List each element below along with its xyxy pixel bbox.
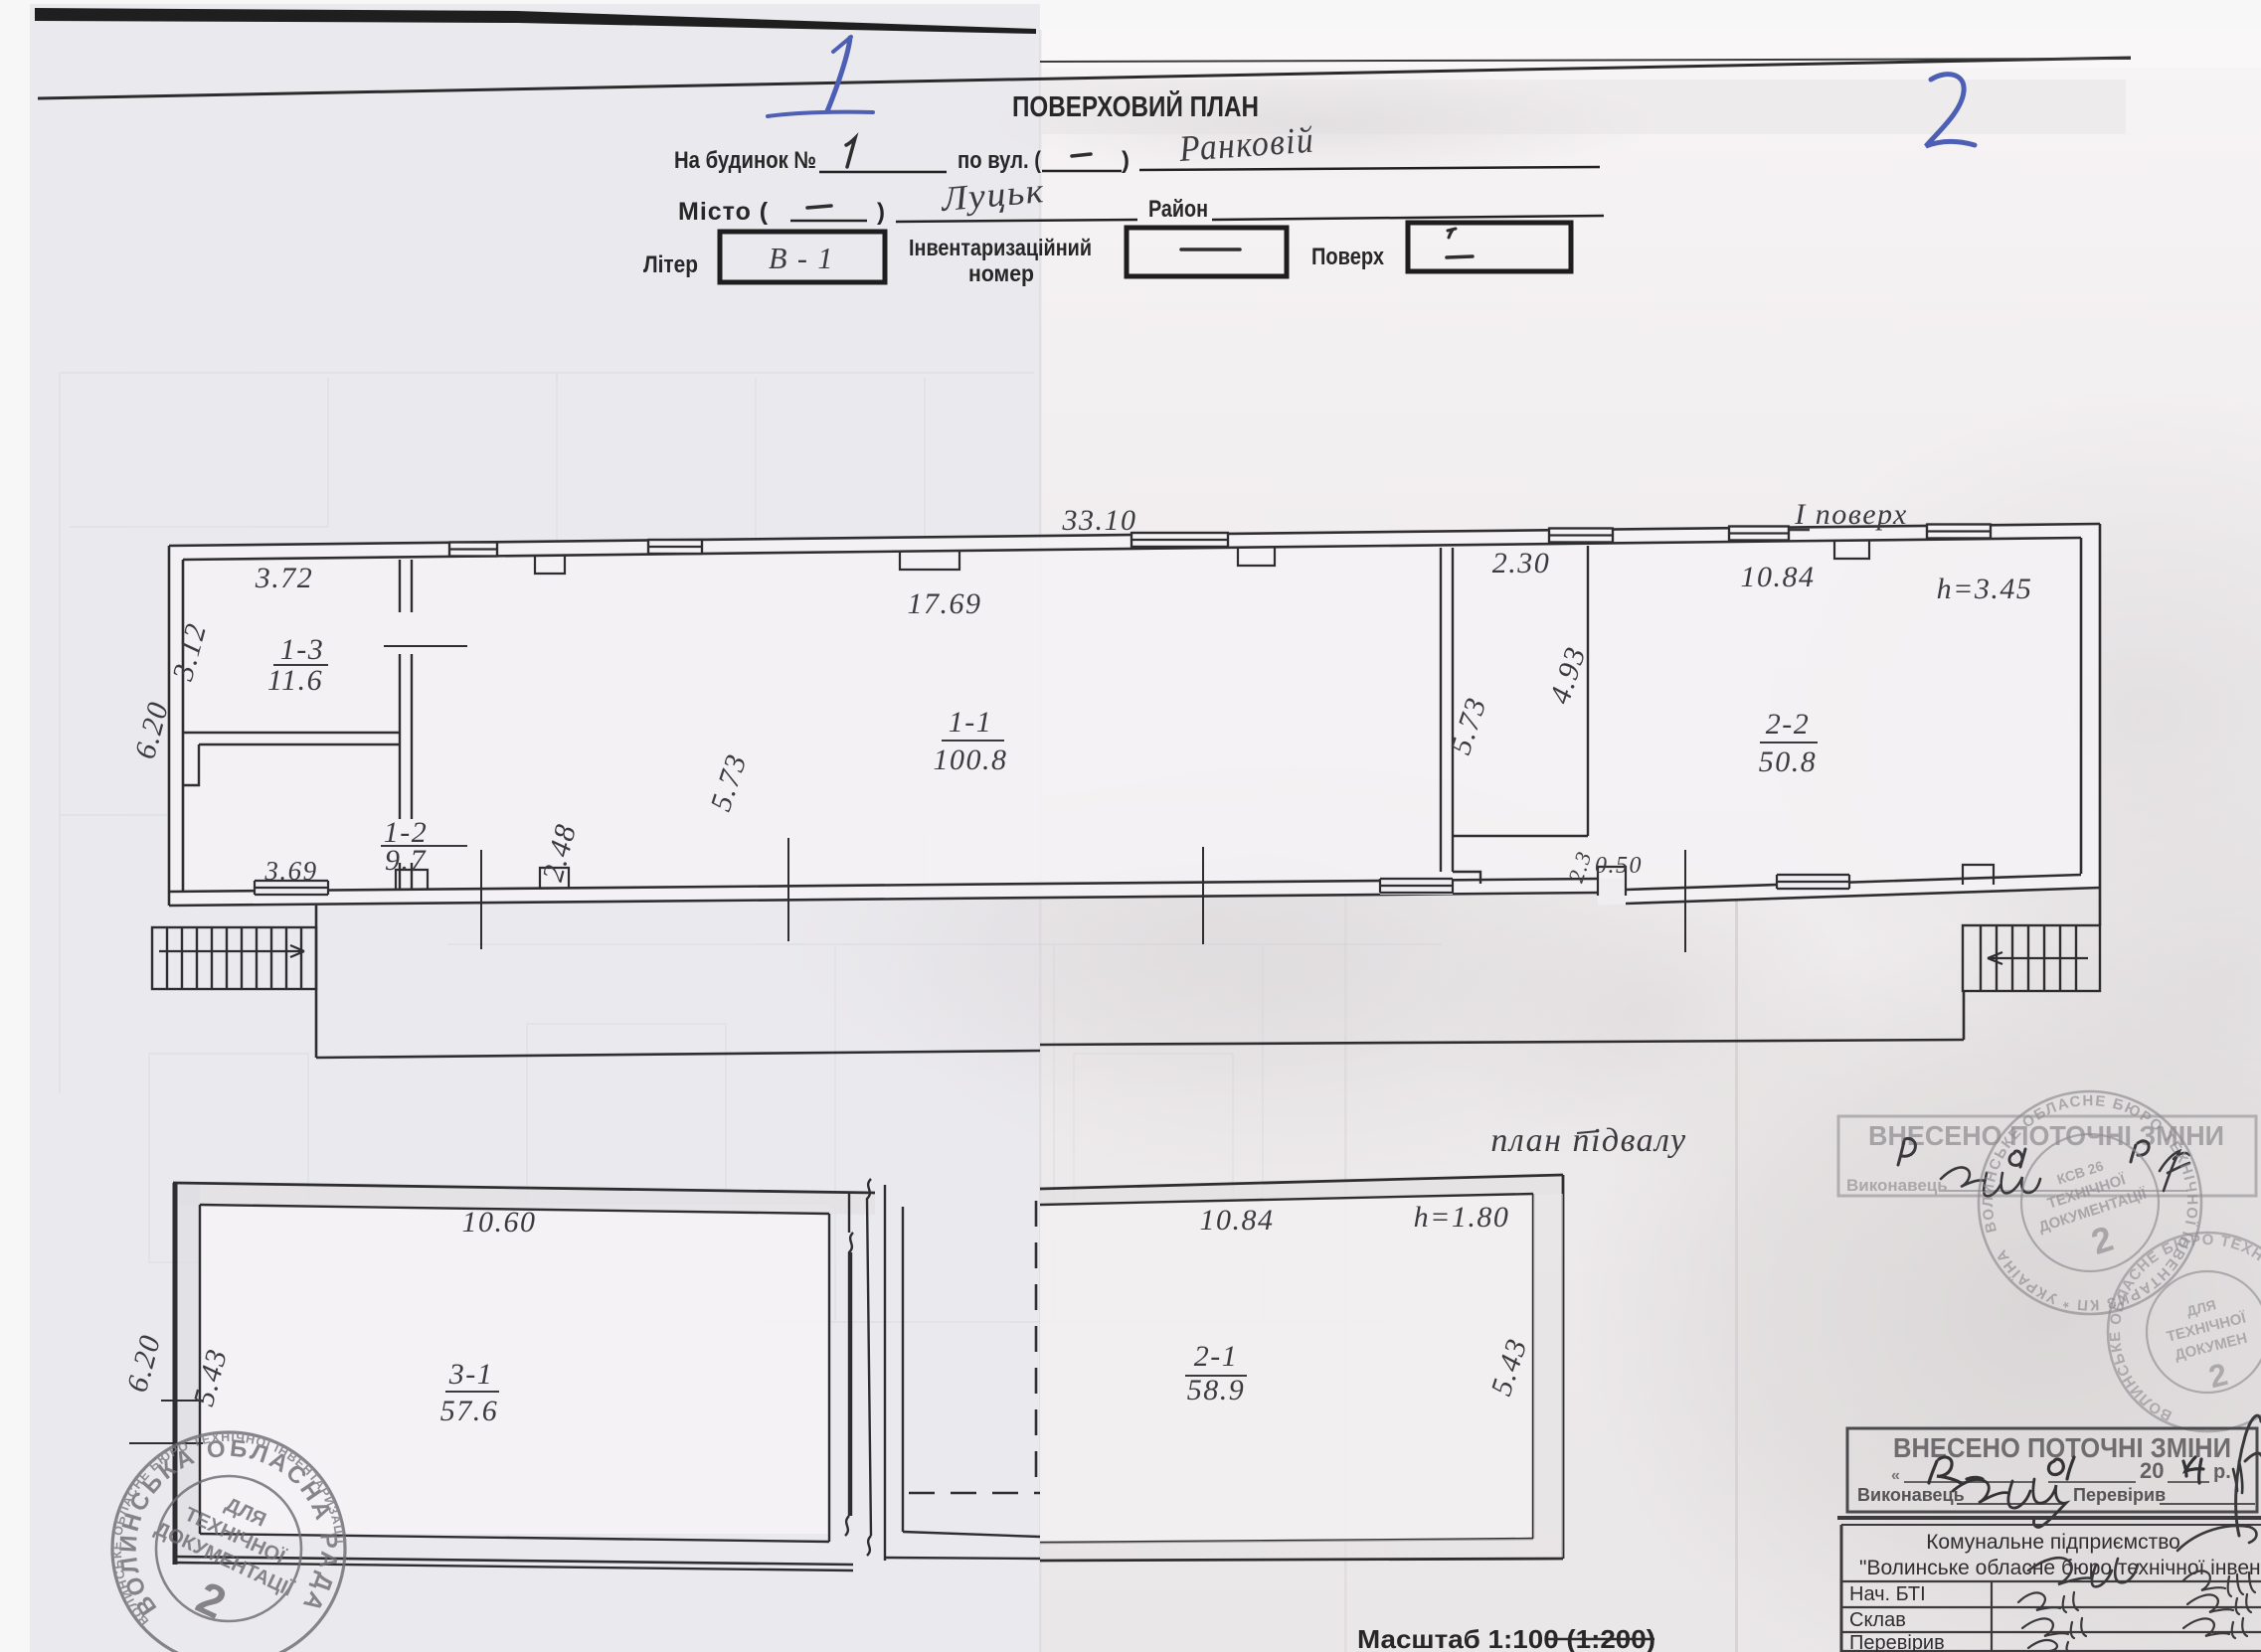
- svg-text:В - 1: В - 1: [769, 241, 834, 275]
- svg-text:58.9: 58.9: [1187, 1374, 1246, 1406]
- svg-text:3.72: 3.72: [255, 562, 314, 594]
- svg-text:"Волинське обласне бюро техніч: "Волинське обласне бюро технічної інвент…: [1859, 1557, 2261, 1579]
- svg-text:Перевірив: Перевірив: [1849, 1632, 1945, 1652]
- svg-text:Інвентаризаційний: Інвентаризаційний: [909, 235, 1092, 260]
- svg-text:Поверх: Поверх: [1311, 244, 1385, 270]
- svg-text:33.10: 33.10: [1062, 504, 1137, 537]
- svg-text:17.69: 17.69: [908, 587, 982, 620]
- svg-text:І поверх: І поверх: [1794, 498, 1908, 531]
- svg-text:Виконавець: Виконавець: [1857, 1485, 1965, 1505]
- svg-text:«: «: [1891, 1467, 1900, 1484]
- svg-text:3.69: 3.69: [263, 856, 317, 886]
- svg-text:0.50: 0.50: [1595, 853, 1643, 879]
- svg-text:1-3: 1-3: [280, 633, 325, 666]
- svg-text:11.6: 11.6: [267, 664, 323, 697]
- svg-text:10.84: 10.84: [1200, 1204, 1275, 1237]
- svg-text:Комунальне підприємство: Комунальне підприємство: [1926, 1531, 2180, 1554]
- svg-text:план підвалу: план підвалу: [1490, 1122, 1686, 1159]
- svg-text:2-1: 2-1: [1194, 1340, 1239, 1373]
- svg-text:Район: Район: [1148, 196, 1208, 223]
- svg-text:номер: номер: [968, 260, 1034, 286]
- svg-text:ПОВЕРХОВИЙ ПЛАН: ПОВЕРХОВИЙ ПЛАН: [1012, 89, 1259, 123]
- svg-text:9.7: 9.7: [385, 844, 428, 877]
- svg-text:Виконавець: Виконавець: [1846, 1176, 1948, 1195]
- svg-text:100.8: 100.8: [934, 743, 1008, 776]
- svg-text:Літер: Літер: [643, 251, 698, 278]
- svg-text:2.30: 2.30: [1492, 547, 1551, 579]
- svg-text:50.8: 50.8: [1759, 745, 1818, 778]
- svg-text:): ): [877, 199, 885, 226]
- svg-text:20: 20: [2140, 1458, 2164, 1483]
- svg-text:3-1: 3-1: [448, 1358, 494, 1391]
- svg-text:Склав: Склав: [1849, 1609, 1906, 1631]
- svg-text:1-1: 1-1: [949, 706, 993, 739]
- svg-text:57.6: 57.6: [440, 1395, 499, 1427]
- svg-text:по вул. (: по вул. (: [957, 147, 1041, 174]
- svg-text:): ): [1122, 147, 1130, 174]
- svg-text:10.60: 10.60: [462, 1206, 537, 1239]
- svg-text:Місто (: Місто (: [678, 198, 769, 226]
- svg-text:h=1.80: h=1.80: [1414, 1201, 1510, 1234]
- svg-text:2-2: 2-2: [1766, 708, 1811, 741]
- svg-text:На будинок №: На будинок №: [674, 147, 816, 174]
- svg-text:h=3.45: h=3.45: [1937, 573, 2033, 605]
- svg-text:Нач. БТІ: Нач. БТІ: [1849, 1583, 1926, 1605]
- svg-text:р.: р.: [2213, 1461, 2231, 1483]
- svg-text:Перевірив: Перевірив: [2073, 1485, 2166, 1505]
- svg-text:10.84: 10.84: [1741, 561, 1816, 593]
